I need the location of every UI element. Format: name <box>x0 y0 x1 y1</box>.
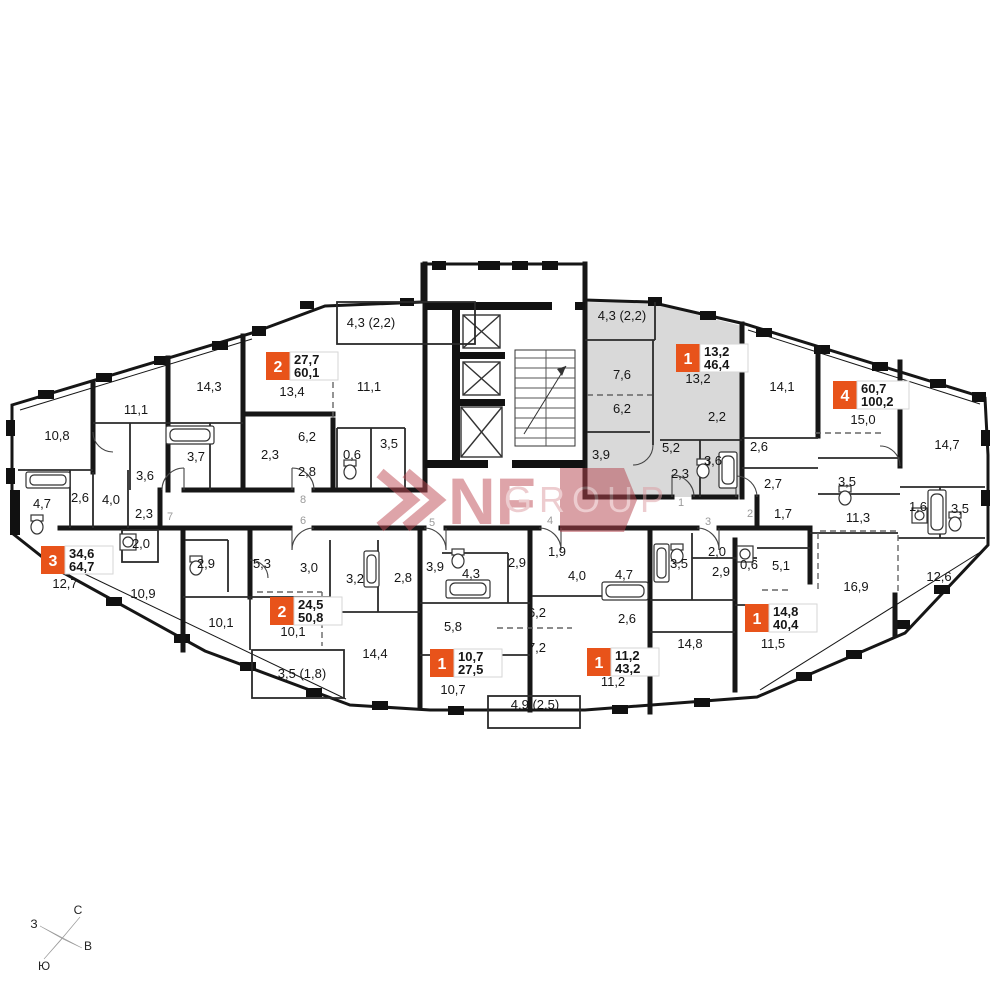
badge-rooms-count: 2 <box>274 359 283 376</box>
room-area-label: 10,7 <box>440 682 465 697</box>
door-number: 8 <box>300 494 306 506</box>
badge-rooms-count: 1 <box>595 655 604 672</box>
room-area-label: 1,6 <box>909 499 927 514</box>
room-area-label: 10,8 <box>44 428 69 443</box>
room-area-label: 2,2 <box>708 409 726 424</box>
room-area-label: 4,7 <box>33 496 51 511</box>
door-number: 2 <box>747 508 753 520</box>
room-area-label: 4,7 <box>615 567 633 582</box>
elevator-core <box>425 302 585 468</box>
badge-rooms-count: 2 <box>278 604 287 621</box>
room-area-label: 4,0 <box>568 568 586 583</box>
room-area-label: 3,5 (1,8) <box>278 666 326 681</box>
room-area-label: 2,3 <box>671 466 689 481</box>
badge-rooms-count: 1 <box>684 351 693 368</box>
apartment-badge[interactable]: 2 27,7 60,1 <box>266 352 338 380</box>
bathtub-icon <box>364 551 379 587</box>
room-area-label: 11,3 <box>846 510 870 525</box>
room-area-label: 7,2 <box>528 640 546 655</box>
bathtub-icon <box>26 472 70 488</box>
bathtub-icon <box>928 490 946 534</box>
room-area-label: 15,0 <box>850 412 875 427</box>
compass-west-label: З <box>30 917 37 931</box>
apartment-badge[interactable]: 1 13,2 46,4 <box>676 344 748 372</box>
room-area-label: 5,2 <box>662 440 680 455</box>
bathtub-icon <box>654 544 669 582</box>
room-area-label: 11,5 <box>761 636 785 651</box>
bathtub-icon <box>602 582 648 600</box>
room-area-label: 12,7 <box>52 576 77 591</box>
room-area-label: 2,0 <box>708 544 726 559</box>
room-area-label: 3,5 <box>380 436 398 451</box>
room-area-label: 2,3 <box>261 447 279 462</box>
badge-total-area: 60,1 <box>294 365 319 380</box>
elevator-shafts <box>461 315 502 457</box>
room-area-label: 16,9 <box>843 579 868 594</box>
room-area-label: 2,6 <box>750 439 768 454</box>
room-area-label: 4,3 <box>462 566 480 581</box>
room-area-label: 4,3 (2,2) <box>347 315 395 330</box>
floor-plan-page: 10,8 11,1 14,3 3,7 3,6 4,7 2,6 4,0 2,3 2… <box>0 0 1000 1000</box>
room-area-label: 10,1 <box>208 615 233 630</box>
room-area-label: 10,1 <box>280 624 305 639</box>
room-area-label: 3,7 <box>187 449 205 464</box>
room-area-label: 2,0 <box>132 536 150 551</box>
badge-total-area: 100,2 <box>861 394 894 409</box>
apartment-badge[interactable]: 3 34,6 64,7 <box>41 546 113 574</box>
badge-rooms-count: 4 <box>841 388 850 405</box>
compass: С В Ю З <box>30 903 92 973</box>
room-area-label: 11,1 <box>124 402 148 417</box>
room-area-label: 3,6 <box>704 453 722 468</box>
room-area-label: 2,8 <box>298 464 316 479</box>
room-area-label: 2,3 <box>135 506 153 521</box>
room-area-label: 2,8 <box>394 570 412 585</box>
room-area-label: 3,5 <box>670 556 688 571</box>
room-area-label: 14,4 <box>362 646 387 661</box>
compass-east-label: В <box>84 939 92 953</box>
room-area-label: 1,9 <box>548 544 566 559</box>
room-area-label: 10,9 <box>130 586 155 601</box>
badge-total-area: 50,8 <box>298 610 323 625</box>
door-number: 7 <box>167 511 173 523</box>
room-area-label: 5,1 <box>772 558 790 573</box>
apartment-badge[interactable]: 4 60,7 100,2 <box>833 381 909 409</box>
apartment-badge[interactable]: 1 14,8 40,4 <box>745 604 817 632</box>
room-area-label: 2,6 <box>71 490 89 505</box>
room-area-label: 2,9 <box>712 564 730 579</box>
badge-total-area: 46,4 <box>704 357 730 372</box>
room-area-label: 4,9 (2,5) <box>511 697 559 712</box>
room-area-label: 13,4 <box>279 384 304 399</box>
room-area-label: 0,6 <box>740 557 758 572</box>
door-number: 6 <box>300 515 306 527</box>
room-area-label: 13,2 <box>685 371 710 386</box>
door-number: 5 <box>429 517 435 529</box>
room-area-label: 2,9 <box>508 555 526 570</box>
staircase <box>515 350 575 446</box>
room-area-label: 5,3 <box>253 556 271 571</box>
badge-total-area: 40,4 <box>773 617 799 632</box>
toilet-icon <box>344 460 356 479</box>
bathtub-icon <box>446 580 490 598</box>
door-number: 3 <box>705 516 711 528</box>
room-area-label: 3,5 <box>838 474 856 489</box>
room-area-label: 6,2 <box>298 429 316 444</box>
room-area-label: 4,3 (2,2) <box>598 308 646 323</box>
room-area-label: 3,5 <box>951 501 969 516</box>
badge-total-area: 27,5 <box>458 662 483 677</box>
room-area-label: 6,2 <box>528 605 546 620</box>
room-area-label: 1,7 <box>774 506 792 521</box>
bathtub-icon <box>166 426 214 444</box>
apartment-badge[interactable]: 1 10,7 27,5 <box>430 649 502 677</box>
watermark-word-text: GROUP <box>504 479 671 520</box>
room-area-label: 3,6 <box>136 468 154 483</box>
room-area-label: 14,1 <box>769 379 794 394</box>
room-area-label: 14,8 <box>677 636 702 651</box>
room-area-label: 2,9 <box>197 556 215 571</box>
room-area-label: 12,6 <box>926 569 951 584</box>
room-area-label: 3,2 <box>346 571 364 586</box>
room-area-label: 6,2 <box>613 401 631 416</box>
room-area-label: 7,6 <box>613 367 631 382</box>
room-area-label: 14,7 <box>934 437 959 452</box>
room-area-label: 3,9 <box>592 447 610 462</box>
room-area-label: 3,9 <box>426 559 444 574</box>
room-area-label: 14,3 <box>196 379 221 394</box>
badge-total-area: 64,7 <box>69 559 94 574</box>
room-area-label: 5,8 <box>444 619 462 634</box>
compass-north-label: С <box>74 903 83 917</box>
apartment-badge[interactable]: 1 11,2 43,2 <box>587 648 659 676</box>
door-number: 1 <box>678 497 684 509</box>
room-area-label: 11,1 <box>357 379 381 394</box>
badge-total-area: 43,2 <box>615 661 640 676</box>
floor-plan-svg: 10,8 11,1 14,3 3,7 3,6 4,7 2,6 4,0 2,3 2… <box>0 0 1000 1000</box>
room-area-label: 2,6 <box>618 611 636 626</box>
badge-rooms-count: 1 <box>438 656 447 673</box>
room-area-label: 4,0 <box>102 492 120 507</box>
room-area-label: 2,7 <box>764 476 782 491</box>
badge-rooms-count: 1 <box>753 611 762 628</box>
compass-south-label: Ю <box>38 959 50 973</box>
badge-rooms-count: 3 <box>49 553 58 570</box>
toilet-icon <box>31 515 43 534</box>
room-area-label: 3,0 <box>300 560 318 575</box>
apartment-badge[interactable]: 2 24,5 50,8 <box>270 597 342 625</box>
room-area-label: 0,6 <box>343 447 361 462</box>
